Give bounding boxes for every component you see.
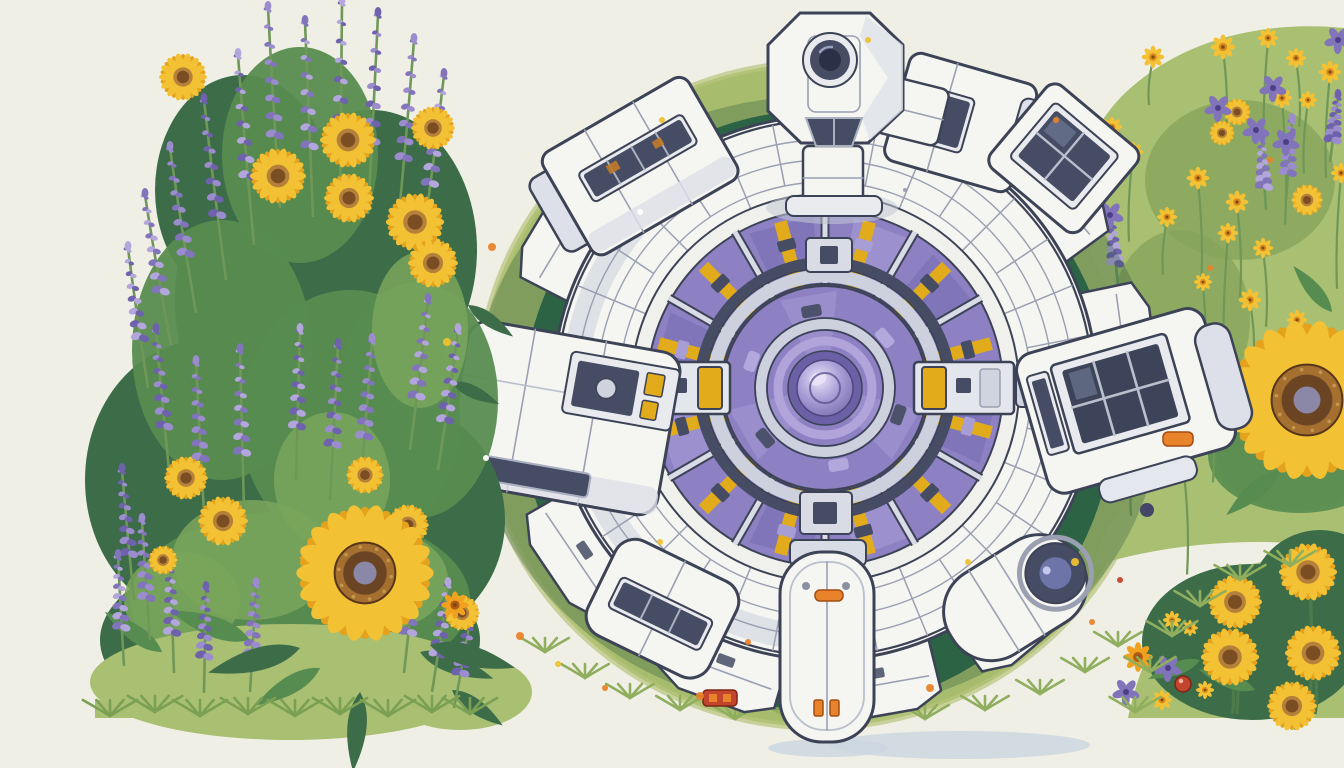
petal-speck: [443, 338, 451, 346]
petal-speck: [1053, 117, 1059, 123]
daisy-flower: [1157, 207, 1178, 228]
daisy-flower: [1187, 167, 1210, 190]
petal-speck: [1071, 558, 1079, 566]
petal-speck: [657, 539, 663, 545]
daisy-flower: [1218, 223, 1239, 244]
petal-speck: [659, 117, 665, 123]
petal-speck: [1207, 265, 1213, 271]
daisy-flower: [1299, 91, 1317, 109]
daisy-flower: [1210, 34, 1235, 59]
petal-speck: [602, 685, 608, 691]
accent-light: [1163, 432, 1193, 446]
daisy-flower: [1239, 289, 1262, 312]
daisy-flower: [441, 591, 468, 618]
petal-speck: [1243, 299, 1249, 305]
petal-speck: [1267, 157, 1273, 163]
daisy-flower: [1319, 61, 1342, 84]
red-accent-light: [703, 690, 737, 706]
petal-speck: [965, 559, 971, 565]
petal-speck: [745, 639, 751, 645]
daisy-flower: [1226, 191, 1249, 214]
daisy-flower: [1253, 238, 1274, 259]
petal-speck: [555, 661, 561, 667]
petal-speck: [516, 632, 524, 640]
petal-speck: [696, 692, 704, 700]
daisy-flower: [1142, 46, 1165, 69]
petal-speck: [926, 684, 934, 692]
core-orb: [797, 360, 853, 416]
pod-bottom-center: [780, 540, 874, 742]
accent-light: [815, 590, 843, 601]
petal-speck: [1140, 503, 1154, 517]
daisy-flower: [1258, 28, 1279, 49]
petal-speck: [637, 209, 643, 215]
red-berry: [1175, 676, 1191, 692]
daisy-flower: [1286, 48, 1307, 69]
petal-speck: [865, 37, 871, 43]
illustration-canvas: [0, 0, 1344, 768]
daisy-flower: [1194, 273, 1212, 291]
petal-speck: [488, 243, 496, 251]
petal-speck: [1117, 577, 1123, 583]
daisy-flower: [1196, 681, 1214, 699]
meadow-station-illustration: Top-down illustration of a white modular…: [0, 0, 1344, 768]
petal-speck: [483, 455, 489, 461]
petal-speck: [1089, 619, 1095, 625]
